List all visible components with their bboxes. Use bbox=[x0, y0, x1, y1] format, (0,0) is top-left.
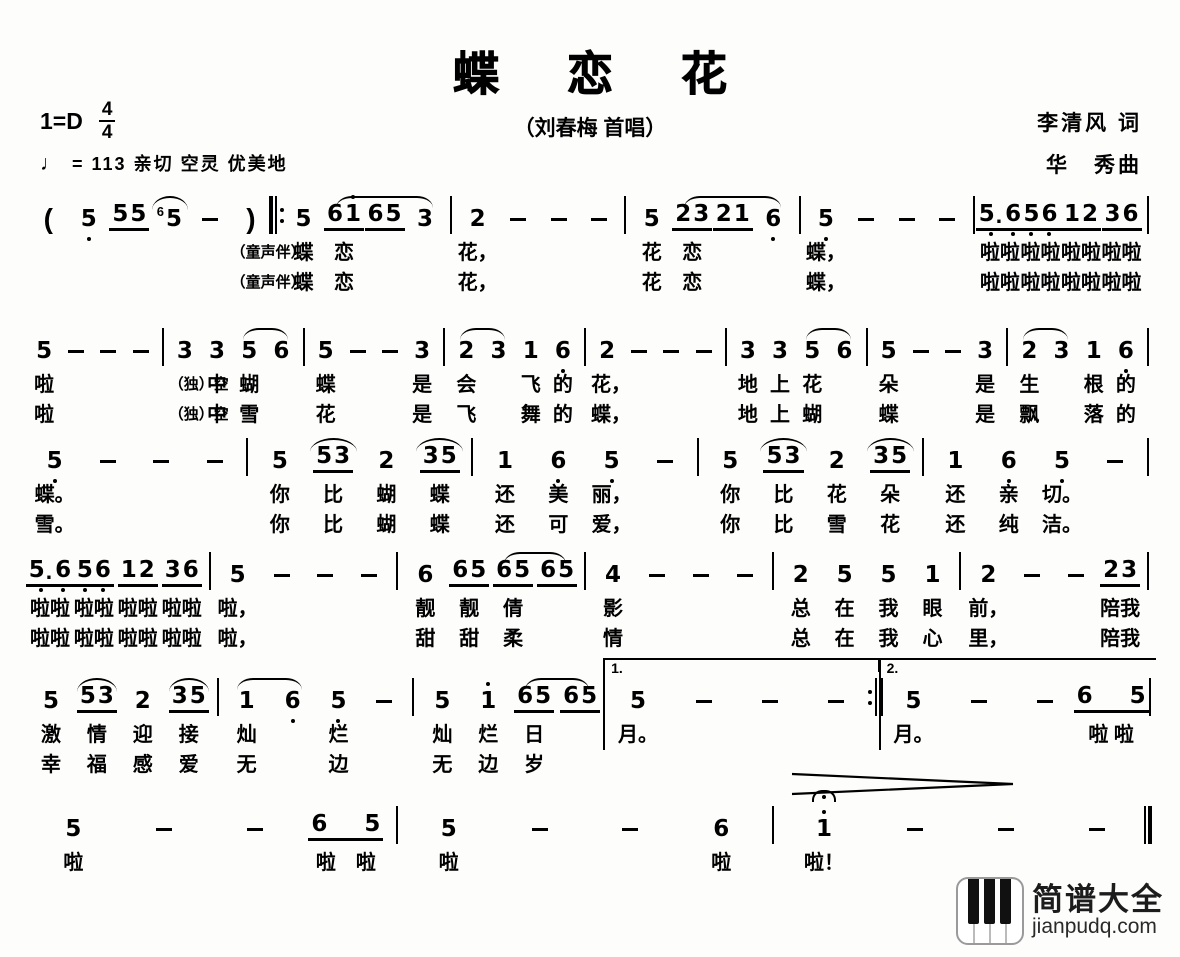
note-digit: 6 bbox=[1077, 684, 1093, 708]
digit: 5 bbox=[881, 563, 897, 587]
note-column: 5月。 bbox=[881, 672, 947, 750]
note-column bbox=[188, 432, 241, 540]
note-digit: 6 bbox=[273, 339, 289, 363]
beam-group: 23 bbox=[672, 202, 712, 231]
barline bbox=[794, 190, 806, 238]
note-column bbox=[585, 800, 676, 878]
note-group: 2 bbox=[591, 322, 623, 370]
lyric: 甜 bbox=[403, 624, 447, 654]
lyric bbox=[119, 848, 210, 878]
lyric bbox=[638, 480, 691, 510]
beam-group: 5 bbox=[878, 563, 900, 587]
note-group: 12 bbox=[1061, 190, 1102, 238]
note-group bbox=[679, 546, 723, 594]
barline-glyph bbox=[395, 552, 399, 590]
digit: 5 bbox=[77, 558, 93, 582]
lyric: 切。 bbox=[1035, 480, 1088, 510]
beam-group: 35 bbox=[420, 444, 460, 473]
note-group bbox=[188, 432, 241, 480]
note-digit: 6 bbox=[765, 207, 781, 231]
note-digit bbox=[98, 460, 118, 473]
beam-group: 56 bbox=[1020, 202, 1060, 231]
lyric bbox=[1010, 594, 1054, 624]
barline-column bbox=[579, 322, 591, 430]
beam-group: 36 bbox=[162, 558, 202, 587]
digit: 1 bbox=[947, 449, 963, 473]
note-column: 2花，蝶， bbox=[591, 322, 623, 430]
note-group: 5 bbox=[28, 800, 119, 848]
beam-group: 3 bbox=[769, 339, 791, 363]
lyric: 情 bbox=[591, 624, 635, 654]
note-column: 12啦啦啦啦 bbox=[1061, 190, 1102, 298]
lyric bbox=[905, 370, 937, 400]
lyric: 比 bbox=[306, 480, 359, 510]
beam-group: 2 bbox=[596, 339, 618, 363]
note-column bbox=[846, 190, 887, 298]
note-digit: 3 bbox=[417, 207, 433, 231]
barline-glyph bbox=[865, 328, 869, 366]
note-digit bbox=[897, 218, 917, 231]
duration-dash bbox=[939, 218, 955, 221]
barline-column bbox=[692, 432, 704, 540]
note-group bbox=[125, 322, 157, 370]
note-group: 35 bbox=[863, 432, 916, 480]
note-digit: 5 bbox=[190, 684, 206, 708]
lyric: 蝴 bbox=[233, 370, 265, 400]
barline-column bbox=[720, 322, 732, 430]
lyric: 靓 bbox=[403, 594, 447, 624]
barline-glyph bbox=[921, 438, 925, 476]
digit: 5 bbox=[441, 444, 457, 468]
bar-stroke bbox=[162, 328, 164, 366]
note-group bbox=[119, 800, 210, 848]
beam-group: 23 bbox=[1100, 558, 1140, 587]
digit: 2 bbox=[139, 558, 155, 582]
duration-dash bbox=[202, 218, 218, 221]
note-digit: 5 bbox=[316, 444, 332, 468]
note-column: 6的的 bbox=[547, 322, 579, 430]
bar-stroke bbox=[275, 196, 277, 234]
note-column: 1烂边 bbox=[465, 672, 511, 780]
music-system-4: 5.6啦啦啦啦56啦啦啦啦12啦啦啦啦36啦啦啦啦5啦，啦，6靓甜65靓甜65倩… bbox=[28, 546, 1154, 654]
note-digit: 5 bbox=[470, 558, 486, 582]
beam-group: 5 bbox=[438, 817, 460, 841]
lyric bbox=[1142, 400, 1154, 430]
lyric: 蝶， bbox=[806, 238, 847, 268]
beam-group bbox=[151, 828, 177, 841]
beam-group bbox=[757, 700, 783, 713]
beam-group bbox=[377, 350, 403, 363]
note-group: 5 bbox=[28, 432, 81, 480]
note-column: 6靓甜 bbox=[403, 546, 447, 654]
music-system-2: 5啦啦3（独）空（独）空3中中5蝴雪65蝶花3是是2会飞31飞舞6的的2花，蝶，… bbox=[28, 322, 1154, 430]
digit: 5 bbox=[722, 449, 738, 473]
note-digit: 5 bbox=[65, 817, 81, 841]
beam-group: 1 bbox=[494, 449, 516, 473]
lyric bbox=[374, 400, 406, 430]
lyric: 花 bbox=[796, 370, 828, 400]
augmentation-dot: . bbox=[996, 204, 1002, 226]
digit: 6 bbox=[183, 558, 199, 582]
lyric bbox=[271, 268, 283, 298]
lyric bbox=[954, 594, 966, 624]
note-column bbox=[119, 800, 210, 878]
note-group bbox=[869, 800, 960, 848]
note-digit bbox=[1105, 460, 1125, 473]
parenthesis: ) bbox=[231, 190, 272, 238]
lyric: 啦啦 bbox=[116, 624, 160, 654]
beam-group: 3 bbox=[411, 339, 433, 363]
note-digit: 5 bbox=[766, 444, 782, 468]
beam-group: 5 bbox=[78, 207, 100, 231]
note-column bbox=[190, 190, 231, 298]
lyric: 啦啦 bbox=[1101, 268, 1142, 298]
digit: 1 bbox=[924, 563, 940, 587]
note-digit: 6 bbox=[540, 558, 556, 582]
note-group bbox=[347, 546, 391, 594]
barline bbox=[271, 190, 283, 238]
note-digit: 5 bbox=[1054, 449, 1070, 473]
note-digit bbox=[151, 460, 171, 473]
note-column: 6 bbox=[265, 322, 297, 430]
lyric bbox=[1142, 370, 1154, 400]
lyric bbox=[498, 268, 539, 298]
lyricist-credit: 李清风 词 bbox=[1037, 103, 1142, 145]
note-digit: 3 bbox=[414, 339, 430, 363]
note-group: 5 bbox=[28, 672, 74, 720]
note-digit: 1 bbox=[345, 202, 361, 226]
octave-dot-high bbox=[822, 810, 826, 814]
note-group: 6 bbox=[982, 432, 1035, 480]
note-group: 5 bbox=[1035, 432, 1088, 480]
beam-group: 1 bbox=[236, 689, 258, 713]
tempo-text: = 113 亲切 空灵 优美地 bbox=[72, 154, 288, 174]
lyric bbox=[69, 238, 110, 268]
beam-group: 5.6 bbox=[976, 202, 1024, 231]
note-column: 3中中 bbox=[201, 322, 233, 430]
lyric bbox=[81, 480, 134, 510]
note-column: 65啦 啦 bbox=[300, 800, 391, 878]
lyric: 比 bbox=[757, 480, 810, 510]
note-group: 1 bbox=[478, 432, 531, 480]
digit: 5 bbox=[470, 558, 486, 582]
note-digit: 2 bbox=[139, 558, 155, 582]
note-group: 23 bbox=[1098, 546, 1142, 594]
lyric bbox=[1142, 594, 1154, 624]
beam-group: 6 bbox=[762, 207, 784, 231]
note-group bbox=[1010, 546, 1054, 594]
digit: 2 bbox=[1082, 202, 1098, 226]
lyric: 啦！ bbox=[779, 848, 870, 878]
note-digit: 5 bbox=[166, 207, 182, 231]
beam-group: 2 bbox=[375, 449, 397, 473]
barline-glyph bbox=[1146, 552, 1150, 590]
barline-glyph bbox=[302, 328, 306, 366]
note-digit: 5. bbox=[29, 558, 53, 582]
note-digit: 3 bbox=[1105, 202, 1121, 226]
lyric bbox=[1142, 238, 1154, 268]
barline-glyph bbox=[1143, 806, 1153, 844]
lyric bbox=[364, 268, 405, 298]
digit: 6 bbox=[368, 202, 384, 226]
note-group bbox=[671, 672, 737, 720]
note-column: 3地地 bbox=[732, 322, 764, 430]
beam-group: 5 bbox=[238, 339, 260, 363]
lyric bbox=[635, 624, 679, 654]
lyric: 啦啦 bbox=[28, 594, 72, 624]
note-group: 2 bbox=[450, 322, 482, 370]
duration-dash bbox=[657, 460, 673, 463]
note-group bbox=[494, 800, 585, 848]
beam-group: 2 bbox=[455, 339, 477, 363]
lyric: 花 bbox=[631, 238, 672, 268]
barline-glyph bbox=[1005, 328, 1009, 366]
lyric: 无 bbox=[224, 750, 270, 780]
octave-dot-low bbox=[1007, 479, 1011, 483]
note-column: 3 bbox=[405, 190, 446, 298]
note-column: 65 bbox=[557, 672, 603, 780]
barline-glyph bbox=[583, 328, 587, 366]
octave-dot-low bbox=[83, 588, 87, 592]
note-group: 6 bbox=[828, 322, 860, 370]
lyric: 岁 bbox=[511, 750, 557, 780]
bar-stroke bbox=[412, 678, 414, 716]
note-column: 35蝶蝶 bbox=[413, 432, 466, 540]
lyric: 啦 bbox=[28, 400, 60, 430]
beam-group: 2 bbox=[790, 563, 812, 587]
octave-dot-low bbox=[101, 588, 105, 592]
beam-group bbox=[993, 828, 1019, 841]
lyric bbox=[157, 400, 169, 430]
lyric bbox=[1089, 510, 1142, 540]
beam-group bbox=[527, 828, 553, 841]
note-group: 6 bbox=[532, 432, 585, 480]
note-group: 3 bbox=[169, 322, 201, 370]
note-group: 2 bbox=[810, 432, 863, 480]
note-column bbox=[635, 546, 679, 654]
beam-group bbox=[908, 350, 934, 363]
digit: 3 bbox=[165, 558, 181, 582]
lyric bbox=[535, 624, 579, 654]
beam-group: 5 bbox=[292, 207, 314, 231]
lyric bbox=[92, 370, 124, 400]
lyric bbox=[1142, 510, 1154, 540]
note-digit: 6 bbox=[496, 558, 512, 582]
note-group bbox=[585, 800, 676, 848]
note-digit bbox=[1035, 700, 1055, 713]
digit: 1 bbox=[734, 202, 750, 226]
lyric bbox=[69, 268, 110, 298]
digit: 6 bbox=[55, 558, 71, 582]
lyric: 幸 bbox=[28, 750, 74, 780]
note-group: 5.6 bbox=[28, 546, 72, 594]
note-column: 6 bbox=[828, 322, 860, 430]
digit: 6 bbox=[327, 202, 343, 226]
octave-dot-low bbox=[824, 237, 828, 241]
beam-group bbox=[644, 574, 670, 587]
octave-dot-low bbox=[556, 479, 560, 483]
note-group: 65 bbox=[557, 672, 603, 720]
lyric bbox=[655, 370, 687, 400]
lyric bbox=[28, 238, 69, 268]
note-digit: 5 bbox=[364, 812, 380, 836]
lyric: 飞 bbox=[450, 400, 482, 430]
note-column: 56啦啦啦啦 bbox=[72, 546, 116, 654]
note-group: 35 bbox=[413, 432, 466, 480]
note-group: 6 bbox=[1110, 322, 1142, 370]
note-digit: 5 bbox=[441, 817, 457, 841]
beam-group bbox=[1084, 828, 1110, 841]
digit: 6 bbox=[1123, 202, 1139, 226]
beam-group bbox=[128, 350, 154, 363]
beam-group: 6 bbox=[710, 817, 732, 841]
barline-glyph bbox=[1146, 196, 1150, 234]
note-column: 1眼心 bbox=[911, 546, 955, 654]
digit: 2 bbox=[716, 202, 732, 226]
staff-line: 5啦啦3（独）空（独）空3中中5蝴雪65蝶花3是是2会飞31飞舞6的的2花，蝶，… bbox=[28, 322, 1154, 430]
beam-group bbox=[345, 350, 371, 363]
octave-dot-low bbox=[1047, 232, 1051, 236]
lyric: 恋 bbox=[672, 238, 713, 268]
duration-dash bbox=[133, 350, 149, 353]
beam-group: 1 bbox=[477, 689, 499, 713]
note-column bbox=[937, 322, 969, 430]
note-group bbox=[905, 322, 937, 370]
lyric bbox=[342, 400, 374, 430]
volta-column: 2.5月。65啦 啦 bbox=[879, 672, 1155, 750]
note-group: 3 bbox=[969, 322, 1001, 370]
note-digit: 6 bbox=[1001, 449, 1017, 473]
bar-stroke bbox=[471, 438, 473, 476]
note-column: 5朵蝶 bbox=[873, 322, 905, 430]
lyric: 你 bbox=[253, 510, 306, 540]
beam-group: 6 bbox=[282, 689, 304, 713]
key-signature: 1=D 4 4 bbox=[40, 100, 115, 142]
staff-line: 5.6啦啦啦啦56啦啦啦啦12啦啦啦啦36啦啦啦啦5啦，啦，6靓甜65靓甜65倩… bbox=[28, 546, 1154, 654]
lyric: 亲 bbox=[982, 480, 1035, 510]
lyric bbox=[135, 480, 188, 510]
digit: 6 bbox=[285, 689, 301, 713]
lyric bbox=[157, 370, 169, 400]
note-group: 61 bbox=[324, 190, 365, 238]
note-group: 65 bbox=[447, 546, 491, 594]
beam-group: 3 bbox=[174, 339, 196, 363]
lyric bbox=[135, 510, 188, 540]
duration-dash bbox=[696, 350, 712, 353]
note-group bbox=[927, 190, 968, 238]
digit: 2 bbox=[378, 449, 394, 473]
beam-group bbox=[505, 218, 531, 231]
lyric: 我 bbox=[867, 594, 911, 624]
note-digit: 3 bbox=[693, 202, 709, 226]
lyric: 在 bbox=[823, 594, 867, 624]
note-group: 53 bbox=[306, 432, 359, 480]
lyric: 日 bbox=[511, 720, 557, 750]
note-column bbox=[655, 322, 687, 430]
duration-dash bbox=[649, 574, 665, 577]
note-digit: 1 bbox=[924, 563, 940, 587]
note-digit: 2 bbox=[1021, 339, 1037, 363]
beam-group: 65 bbox=[537, 558, 577, 587]
beam-group bbox=[691, 350, 717, 363]
lyric bbox=[361, 720, 407, 750]
note-group: 6 bbox=[270, 672, 316, 720]
note-group: 6 bbox=[547, 322, 579, 370]
note-column bbox=[361, 672, 407, 780]
note-group: 55 bbox=[109, 190, 150, 238]
note-digit: 5 bbox=[891, 444, 907, 468]
barline bbox=[767, 800, 779, 848]
note-digit: 2 bbox=[716, 202, 732, 226]
bar-stroke bbox=[450, 196, 452, 234]
watermark-site-url: jianpudq.com bbox=[1032, 916, 1157, 938]
note-digit: 5 bbox=[80, 684, 96, 708]
digit: 5 bbox=[1023, 202, 1039, 226]
note-column: 5啦啦 bbox=[28, 322, 60, 430]
lyric bbox=[212, 720, 224, 750]
note-digit: 6 bbox=[550, 449, 566, 473]
beam-group: 1 bbox=[944, 449, 966, 473]
note-digit: 1 bbox=[1064, 202, 1080, 226]
note-column: 5蝶蝶 bbox=[283, 190, 324, 298]
quarter-note-icon: ♩ bbox=[40, 152, 63, 175]
lyric: 的 bbox=[547, 400, 579, 430]
digit: 5 bbox=[818, 207, 834, 231]
lyric bbox=[241, 510, 253, 540]
repeat-dot bbox=[868, 690, 872, 694]
note-digit bbox=[647, 574, 667, 587]
lyric: 蝶 bbox=[873, 400, 905, 430]
duration-dash bbox=[382, 350, 398, 353]
lyric: 还 bbox=[478, 510, 531, 540]
note-column: 5我我 bbox=[867, 546, 911, 654]
lyric: 啦啦 bbox=[1061, 238, 1102, 268]
note-group bbox=[635, 546, 679, 594]
note-column: 5切。洁。 bbox=[1035, 432, 1088, 540]
note-digit bbox=[1066, 574, 1086, 587]
lyric: 恋 bbox=[672, 268, 713, 298]
note-digit: 5 bbox=[535, 684, 551, 708]
note-digit: 1 bbox=[523, 339, 539, 363]
lyric bbox=[347, 624, 391, 654]
lyric bbox=[466, 510, 478, 540]
lyric: 甜 bbox=[447, 624, 491, 654]
lyric bbox=[579, 594, 591, 624]
digit: 5 bbox=[644, 207, 660, 231]
lyric bbox=[655, 400, 687, 430]
digit: 3 bbox=[1054, 339, 1070, 363]
duration-dash bbox=[100, 460, 116, 463]
note-digit bbox=[691, 574, 711, 587]
note-digit: 5 bbox=[386, 202, 402, 226]
note-column bbox=[1089, 432, 1142, 540]
note-column: 6 bbox=[753, 190, 794, 298]
music-system-5: 5激幸53情福2迎感35接爱1灿无65烂边5灿无1烂边65日岁651.5月。2.… bbox=[28, 672, 1154, 780]
note-group: 5 bbox=[631, 190, 672, 238]
bar-stroke bbox=[1149, 678, 1151, 716]
lyric bbox=[265, 400, 297, 430]
note-group: 65 bbox=[300, 800, 391, 848]
note-group: 5 bbox=[403, 800, 494, 848]
note-group: 3 bbox=[405, 190, 446, 238]
digit: 5 bbox=[630, 689, 646, 713]
volta-bracket: 2.5月。65啦 啦 bbox=[879, 658, 1157, 750]
beam-group: 4 bbox=[602, 563, 624, 587]
barline bbox=[391, 546, 403, 594]
digit: 3 bbox=[423, 444, 439, 468]
lyric: 美 bbox=[532, 480, 585, 510]
barline bbox=[391, 800, 403, 848]
